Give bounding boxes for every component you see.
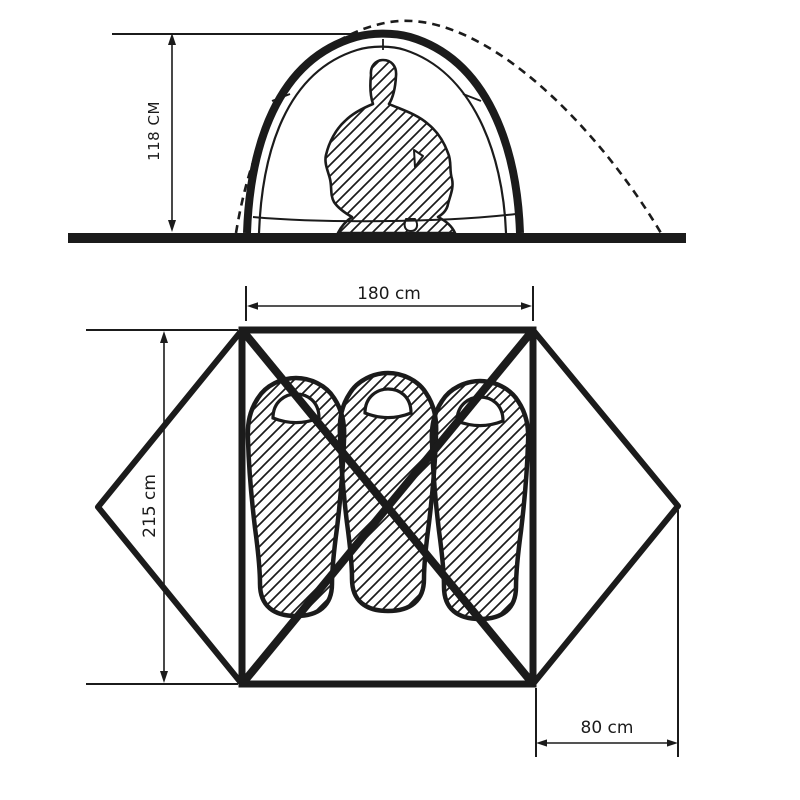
height-dimension-label: 118 CM: [145, 101, 163, 161]
ground-line: [68, 233, 686, 243]
length-dimension: 215 cm: [86, 330, 238, 684]
top-view: 180 cm 215 cm 80 cm: [86, 284, 678, 757]
vestibule-left: [98, 330, 242, 684]
side-view: 118 CM: [68, 21, 686, 243]
height-dimension: 118 CM: [145, 33, 176, 232]
person-silhouette: [325, 60, 455, 233]
sleeping-bag: [340, 373, 436, 611]
vestibule-dimension-label: 80 cm: [581, 718, 634, 738]
vestibule-dimension: 80 cm: [536, 510, 678, 757]
sleeping-bags: [248, 373, 528, 619]
tent-dimension-diagram: 118 CM 180 cm 215 cm: [0, 0, 800, 800]
length-dimension-label: 215 cm: [140, 474, 160, 538]
width-dimension: 180 cm: [246, 284, 533, 321]
width-dimension-label: 180 cm: [357, 284, 421, 304]
vestibule-right: [533, 330, 678, 684]
